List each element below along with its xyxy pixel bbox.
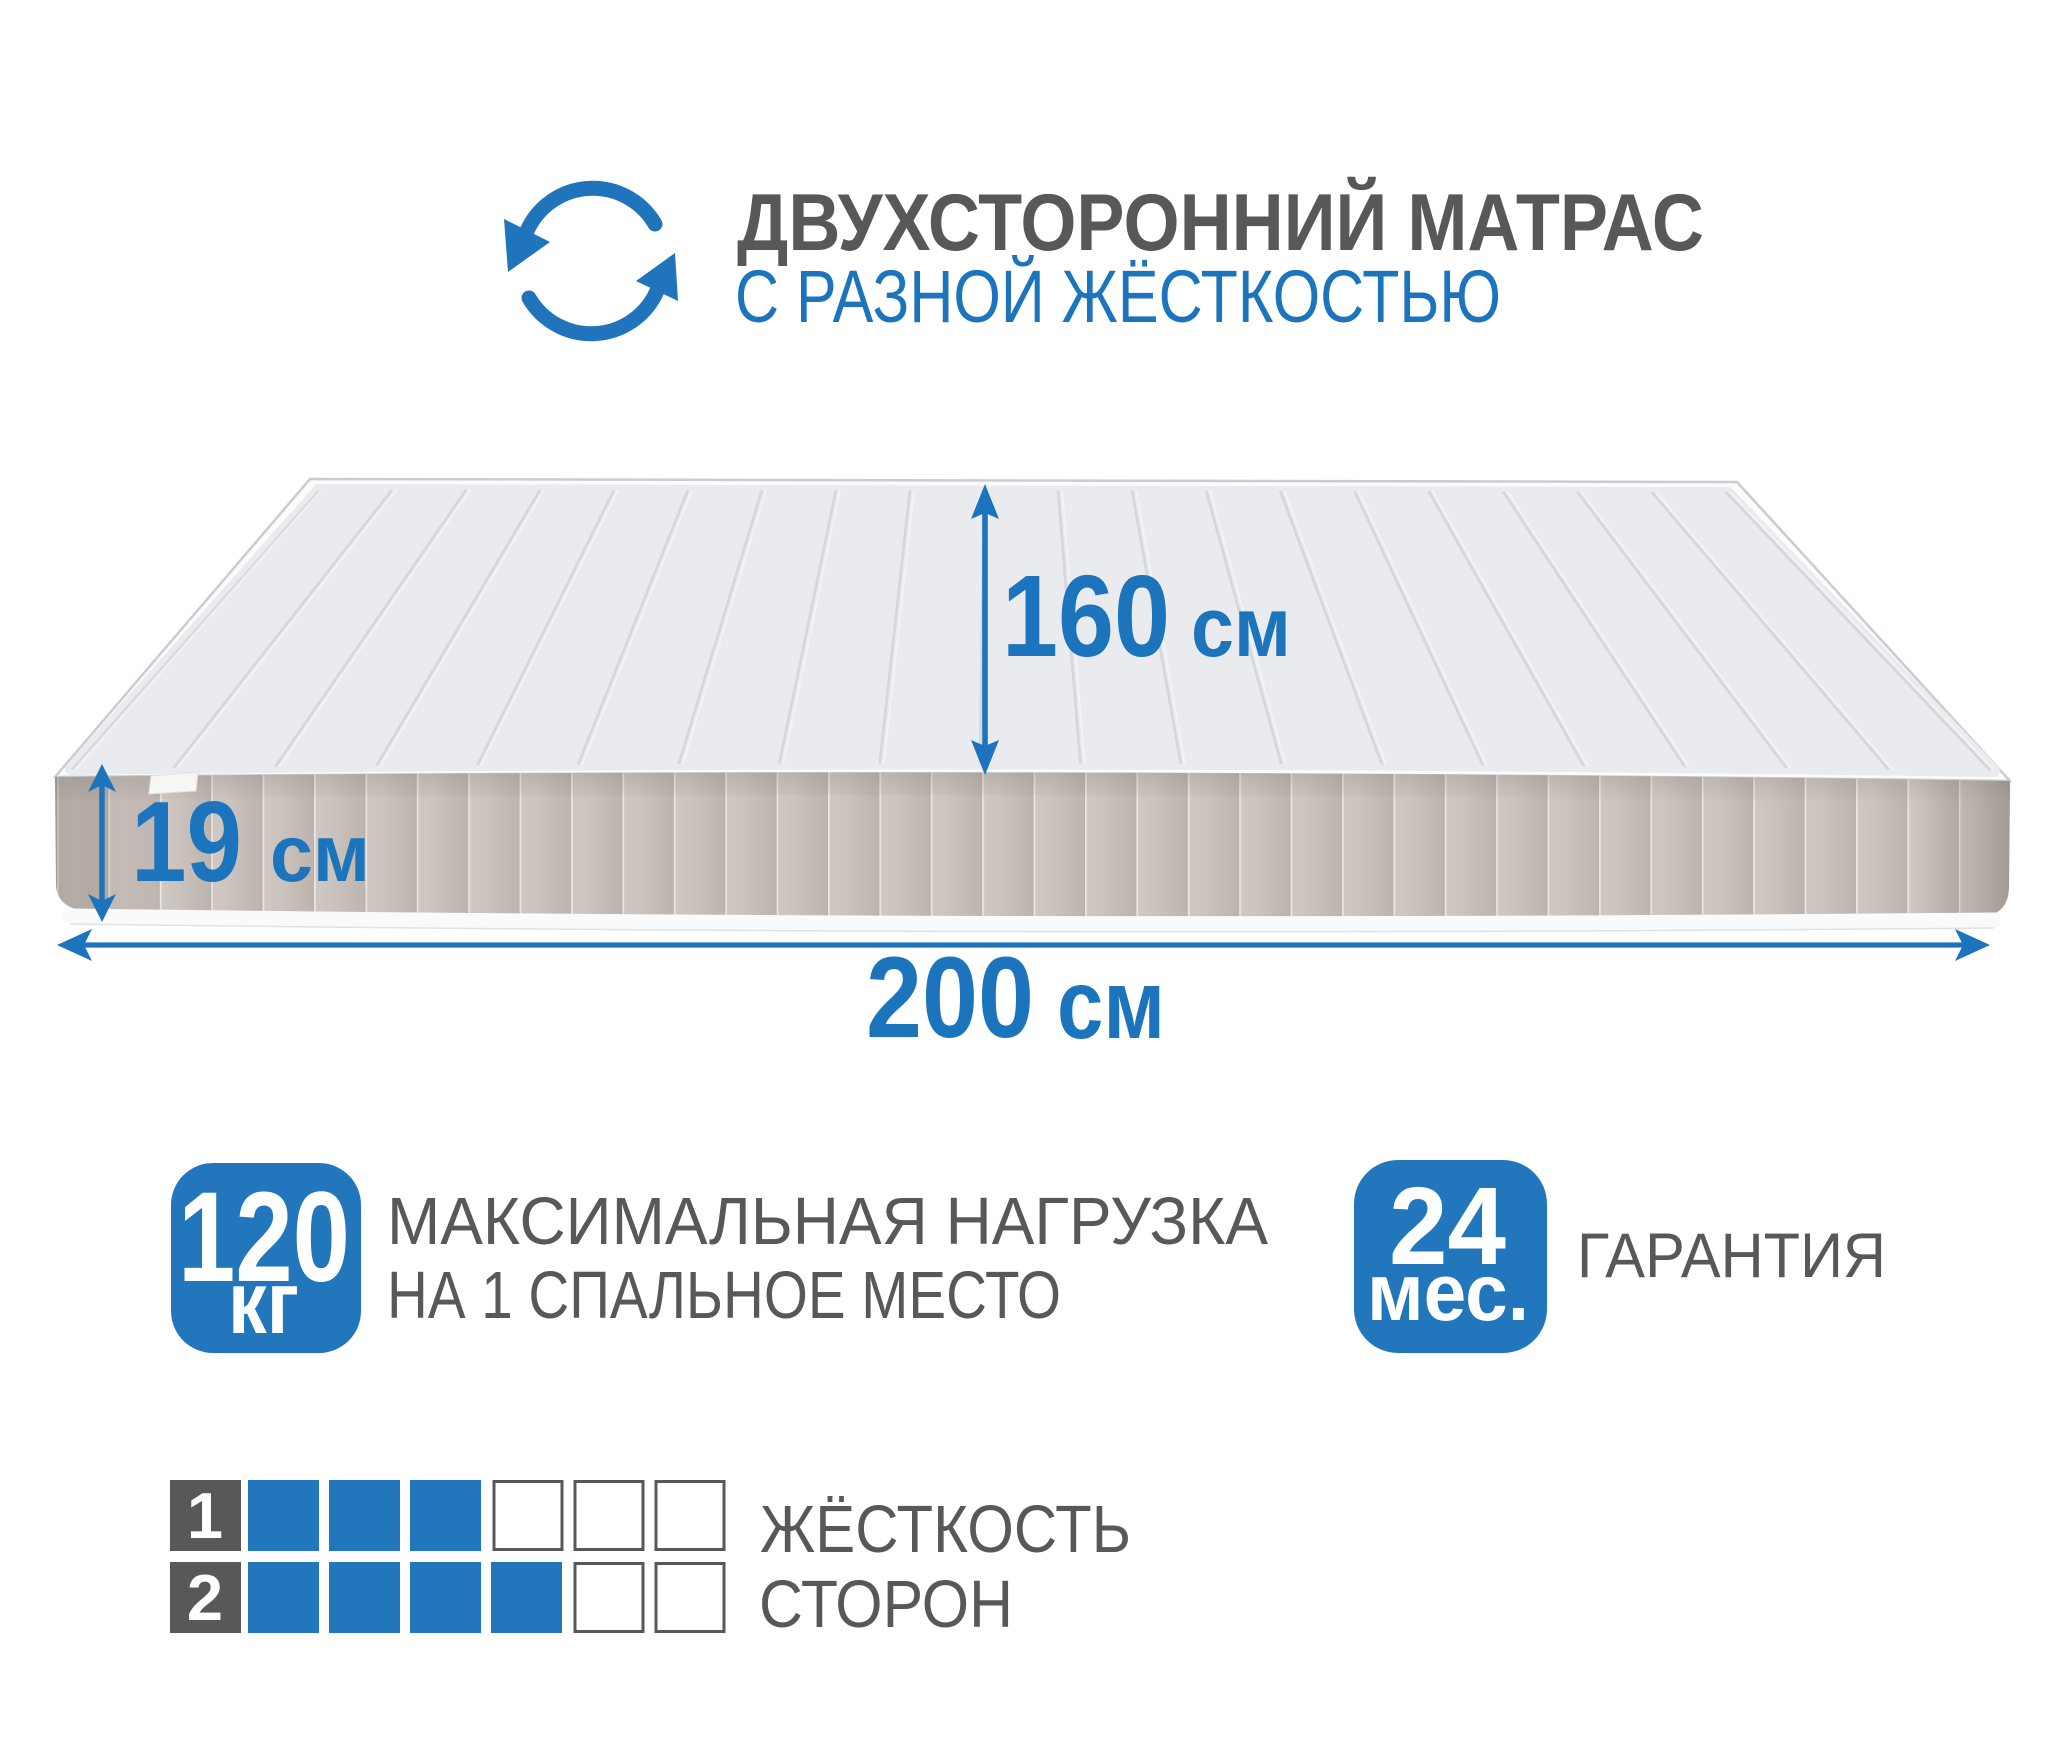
svg-text:С РАЗНОЙ ЖЁСТКОСТЬЮ: С РАЗНОЙ ЖЁСТКОСТЬЮ	[735, 255, 1501, 338]
svg-text:см: см	[1057, 949, 1165, 1059]
svg-text:МАКСИМАЛЬНАЯ НАГРУЗКА: МАКСИМАЛЬНАЯ НАГРУЗКА	[387, 1184, 1268, 1259]
svg-text:СТОРОН: СТОРОН	[759, 1567, 1013, 1642]
svg-text:200: 200	[866, 934, 1034, 1062]
svg-text:ЖЁСТКОСТЬ: ЖЁСТКОСТЬ	[760, 1492, 1131, 1567]
svg-text:НА 1 СПАЛЬНОЕ МЕСТО: НА 1 СПАЛЬНОЕ МЕСТО	[387, 1258, 1061, 1333]
svg-text:2: 2	[187, 1561, 223, 1634]
svg-text:1: 1	[187, 1479, 223, 1552]
svg-text:см: см	[1191, 580, 1291, 674]
svg-text:кг: кг	[228, 1253, 299, 1352]
svg-text:мес.: мес.	[1367, 1248, 1529, 1338]
svg-text:см: см	[270, 809, 370, 899]
svg-text:19: 19	[131, 779, 242, 906]
svg-text:160: 160	[1002, 551, 1170, 681]
svg-text:ГАРАНТИЯ: ГАРАНТИЯ	[1577, 1221, 1886, 1291]
